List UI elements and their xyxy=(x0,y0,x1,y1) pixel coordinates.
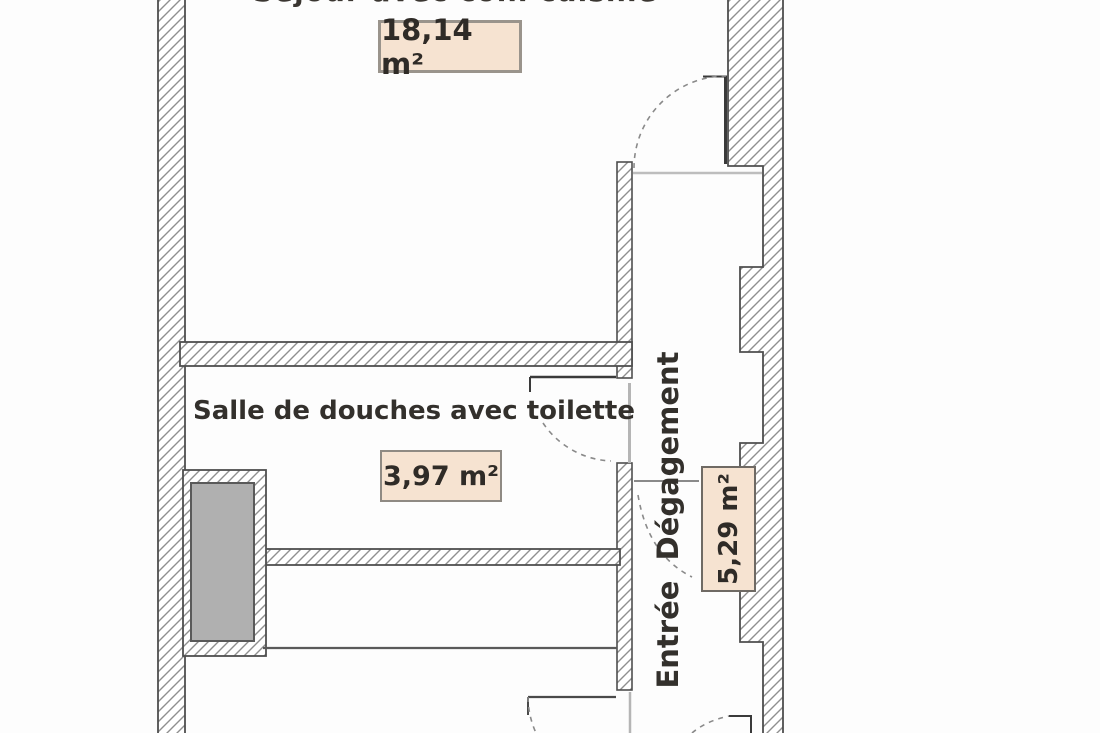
wall-right xyxy=(728,0,783,733)
living-room-label-text: Séjour avec coin cuisine xyxy=(253,0,673,8)
wall-shower-bottom xyxy=(256,549,620,565)
door-living-swing-arc xyxy=(634,76,726,168)
area-value-shower: 3,97 m² xyxy=(383,461,499,492)
shower-room-label: Salle de douches avec toilette xyxy=(193,396,633,426)
door-entrance-leaf xyxy=(729,716,751,733)
wall-shower-top xyxy=(180,342,632,366)
door-bottom-swing-arc xyxy=(528,697,536,733)
area-value-living: 18,14 m² xyxy=(381,13,519,81)
door-entrance-swing-arc xyxy=(692,716,729,733)
floor-plan-drawing xyxy=(0,0,1100,733)
area-value-hallway: 5,29 m² xyxy=(714,473,744,585)
door-shower-swing-arc xyxy=(543,423,611,461)
floor-plan: Séjour avec coin cuisine 18,14 m² Salle … xyxy=(0,0,1100,733)
area-label-living: 18,14 m² xyxy=(378,20,522,73)
hallway-label: Entrée Dégagement xyxy=(648,345,688,695)
area-label-hallway: 5,29 m² xyxy=(701,466,756,592)
living-room-label-cropped: Séjour avec coin cuisine xyxy=(253,0,673,9)
wall-middle-lower xyxy=(617,463,632,690)
shower-duct-fill xyxy=(191,483,254,641)
area-label-shower: 3,97 m² xyxy=(380,450,502,502)
